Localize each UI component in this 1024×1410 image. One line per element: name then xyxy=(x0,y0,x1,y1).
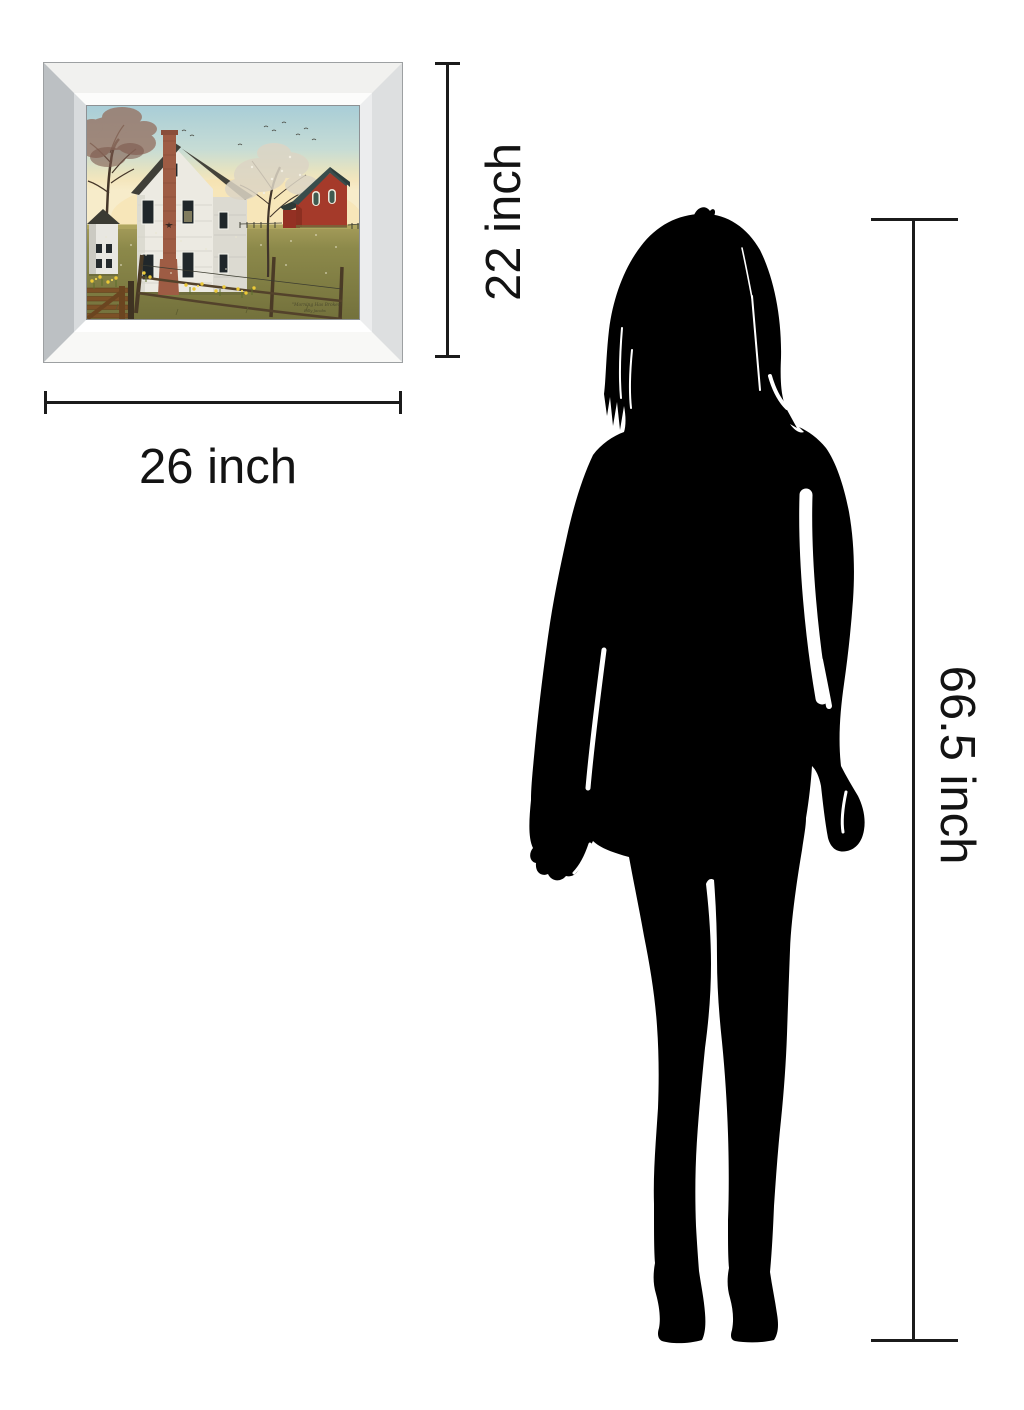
person-dimension-line xyxy=(912,219,915,1341)
woman-silhouette xyxy=(0,0,1024,1410)
size-comparison-diagram: "Morning Has Broken" Billy Jacobs 22 inc… xyxy=(0,0,1024,1410)
person-dimension-cap-top xyxy=(871,218,958,221)
person-dimension-cap-bottom xyxy=(871,1339,958,1342)
person-height-label: 66.5 inch xyxy=(929,666,985,865)
silhouette-body xyxy=(529,214,864,1343)
